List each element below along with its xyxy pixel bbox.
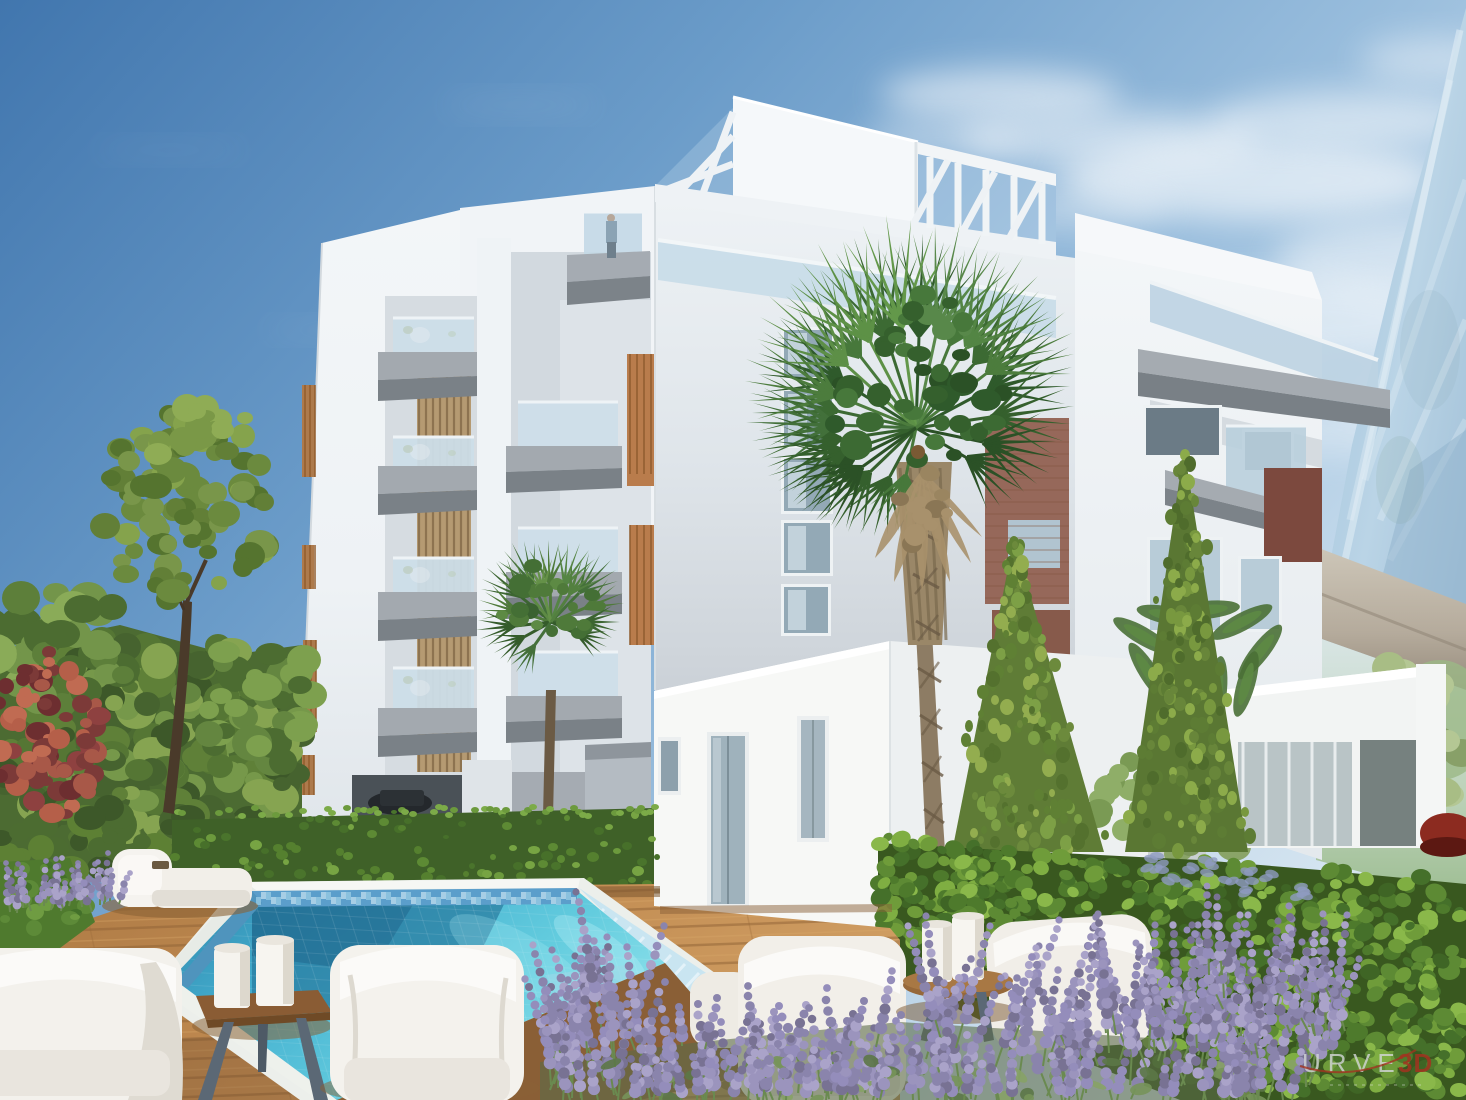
svg-text:3D: 3D bbox=[1398, 1048, 1433, 1078]
